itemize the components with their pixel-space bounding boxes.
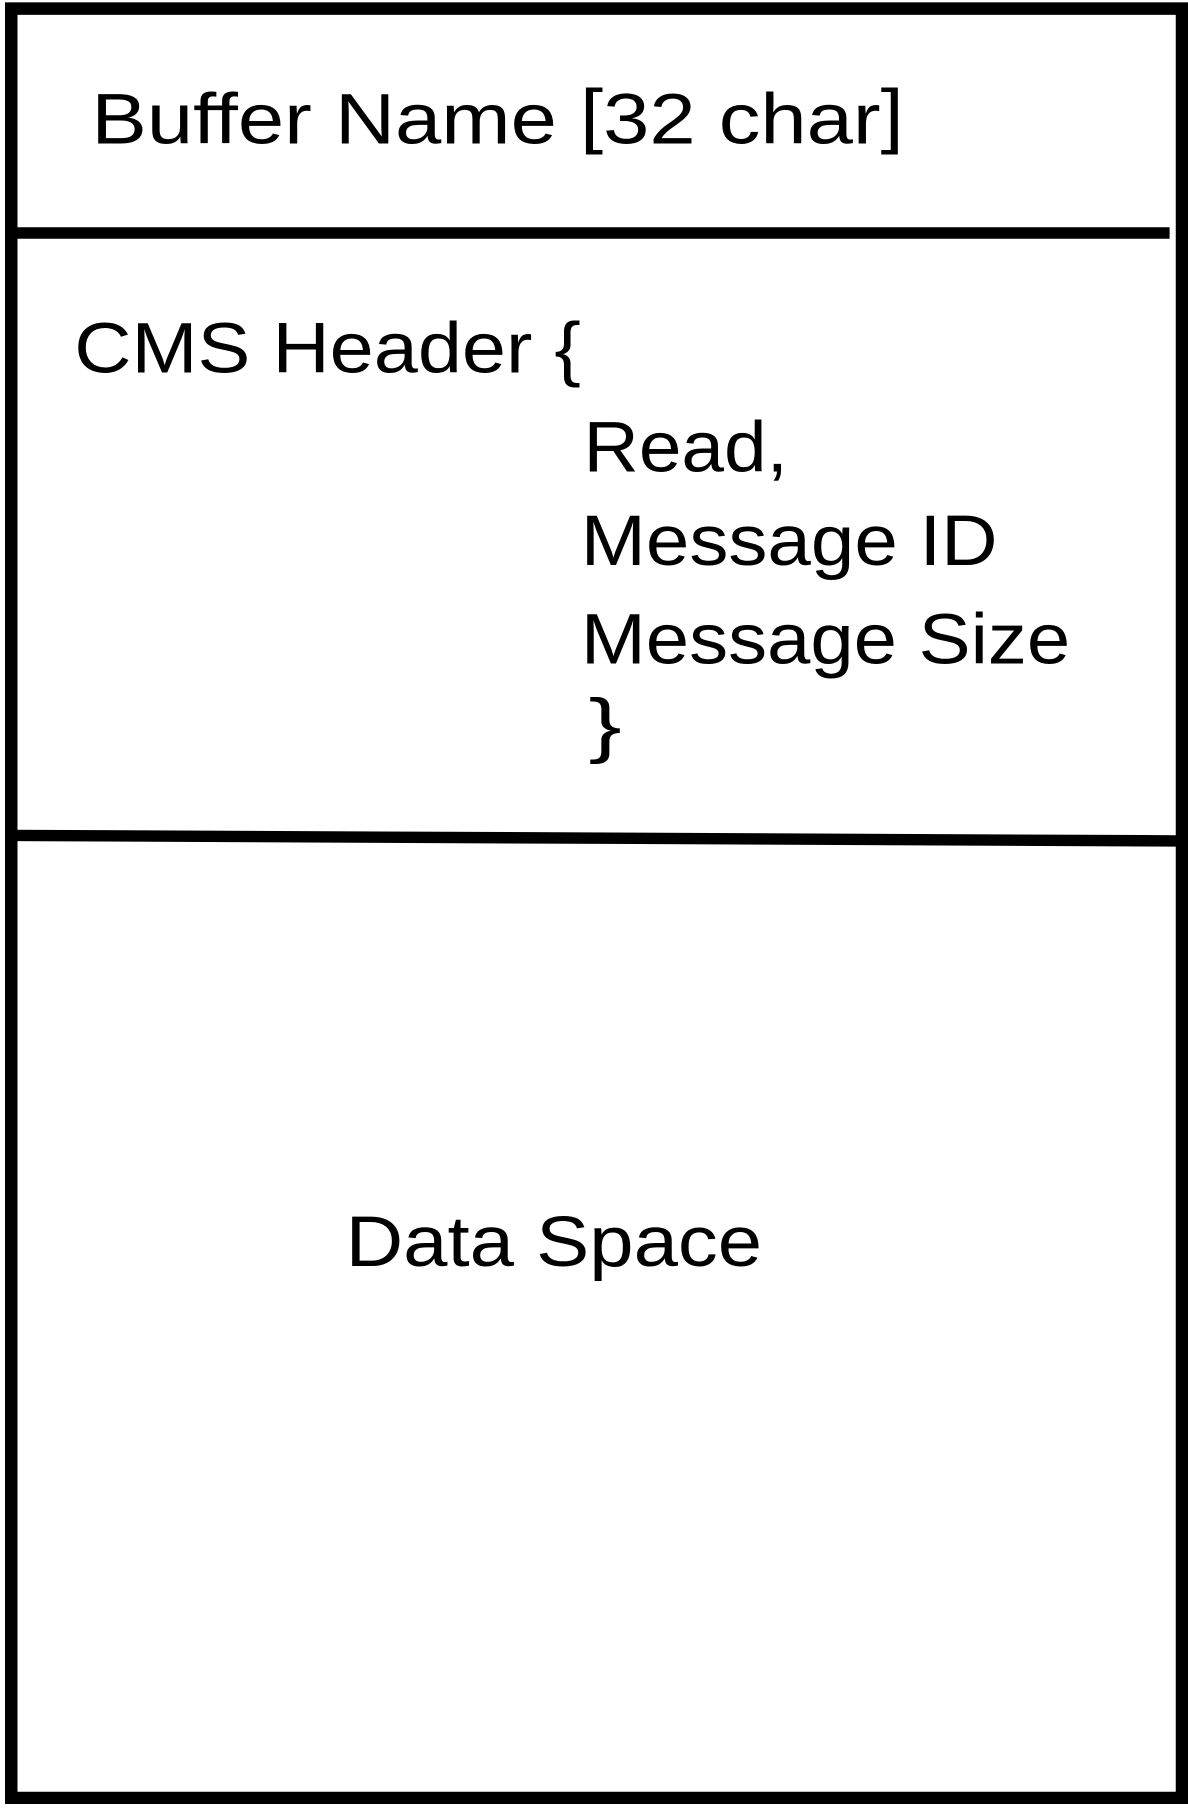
svg-text:CMS Header {: CMS Header { [74,309,581,388]
svg-text:Read,: Read, [584,409,788,488]
svg-text:Buffer Name [32 char]: Buffer Name [32 char] [91,77,903,160]
svg-text:Data Space: Data Space [346,1203,762,1282]
svg-text:Message ID: Message ID [581,502,998,581]
svg-text:}: } [589,686,622,765]
svg-text:Message Size: Message Size [581,601,1070,680]
